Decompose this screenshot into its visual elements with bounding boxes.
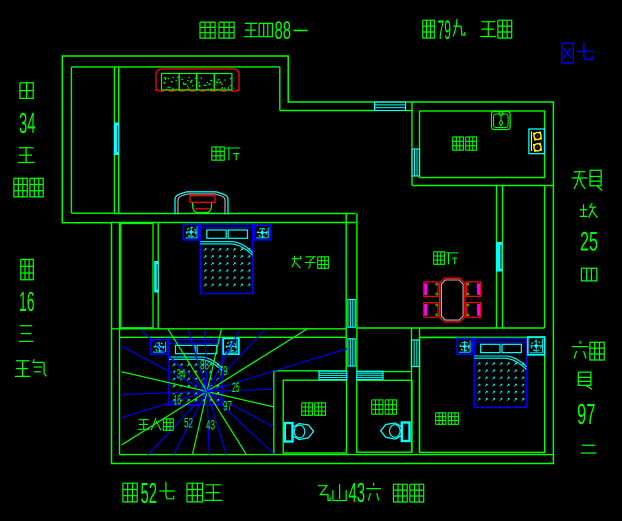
svg-text:25: 25 <box>580 227 598 257</box>
svg-text:34: 34 <box>19 108 36 140</box>
svg-text:16: 16 <box>19 286 35 317</box>
svg-text:97: 97 <box>577 399 596 431</box>
svg-text:52: 52 <box>184 415 193 430</box>
svg-text:34: 34 <box>177 366 186 381</box>
svg-text:25: 25 <box>232 380 240 395</box>
svg-text:16: 16 <box>174 392 182 407</box>
svg-text:97: 97 <box>223 398 232 413</box>
svg-text:52: 52 <box>141 478 158 510</box>
svg-text:88: 88 <box>200 357 209 372</box>
svg-text:79: 79 <box>438 15 452 45</box>
svg-text:43: 43 <box>349 477 366 508</box>
svg-text:79: 79 <box>219 363 228 378</box>
svg-text:88: 88 <box>275 17 292 45</box>
svg-text:43: 43 <box>206 417 215 432</box>
